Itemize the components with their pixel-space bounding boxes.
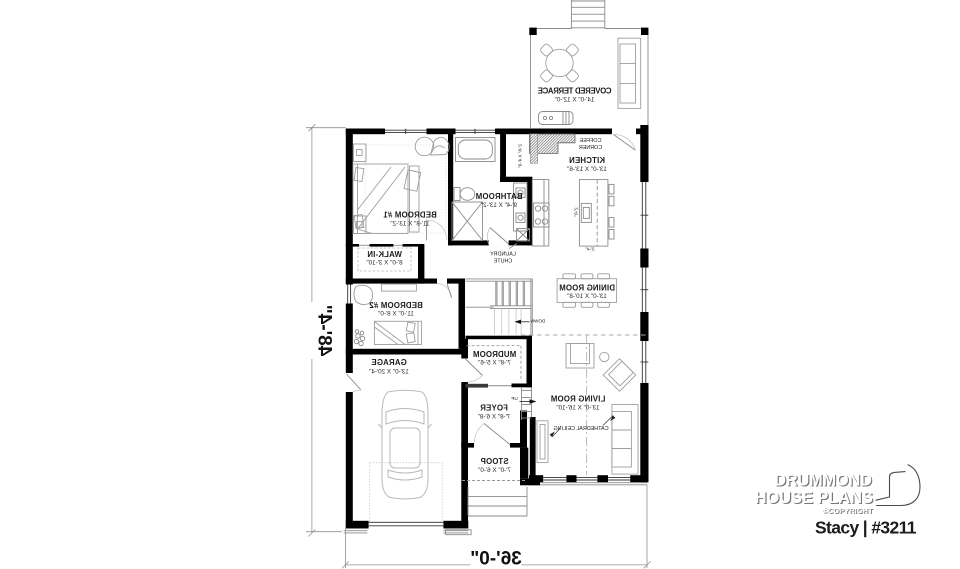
svg-text:13'-0" X 20'-4": 13'-0" X 20'-4": [369, 369, 409, 376]
svg-text:LAUNDRY: LAUNDRY: [490, 252, 516, 258]
svg-text:11'-0" X 8'-0": 11'-0" X 8'-0": [378, 311, 414, 318]
svg-text:7'-0" X 6'-0": 7'-0" X 6'-0": [478, 467, 511, 474]
svg-text:CATHEDRAL CEILING: CATHEDRAL CEILING: [553, 426, 608, 432]
svg-text:UP: UP: [511, 396, 517, 401]
svg-text:KITCHEN: KITCHEN: [569, 156, 605, 165]
svg-text:8'-0" X 3'-10": 8'-0" X 3'-10": [366, 260, 402, 267]
svg-text:13'-0" X 10'-8": 13'-0" X 10'-8": [567, 293, 607, 300]
svg-text:7'-8" X 5'-6": 7'-8" X 5'-6": [478, 360, 511, 367]
svg-text:BEDROOM #2: BEDROOM #2: [369, 301, 423, 310]
svg-text:DINING ROOM: DINING ROOM: [559, 284, 615, 293]
svg-text:13'-0" X 16'-10": 13'-0" X 16'-10": [556, 405, 599, 412]
svg-text:CORNER: CORNER: [579, 145, 602, 151]
svg-text:LIVING ROOM: LIVING ROOM: [551, 395, 606, 404]
svg-text:HOUSE PLANS: HOUSE PLANS: [755, 489, 874, 507]
svg-text:MUDROOM: MUDROOM: [473, 350, 516, 359]
svg-text:2'-0": 2'-0": [574, 207, 579, 217]
svg-text:48'-4": 48'-4": [314, 305, 335, 357]
svg-text:13'-0" X 13'-6": 13'-0" X 13'-6": [567, 166, 607, 173]
svg-text:WALK-IN: WALK-IN: [367, 250, 402, 259]
svg-text:BEDROOM #1: BEDROOM #1: [383, 211, 437, 220]
svg-text:3'-4": 3'-4": [585, 247, 595, 252]
svg-text:COFFEE: COFFEE: [579, 138, 601, 144]
svg-text:STOOP: STOOP: [480, 457, 508, 466]
svg-text:2'-6" X 4'-9": 2'-6" X 4'-9": [518, 144, 523, 168]
svg-text:36'-0": 36'-0": [470, 549, 522, 569]
svg-text:14'-0" X 12'-0": 14'-0" X 12'-0": [555, 97, 595, 104]
svg-text:BATHROOM: BATHROOM: [476, 192, 523, 201]
svg-text:DOWN: DOWN: [531, 318, 546, 323]
svg-text:COVERED TERRACE: COVERED TERRACE: [538, 87, 612, 96]
svg-text:CHUTE: CHUTE: [493, 259, 512, 265]
svg-text:FOYER: FOYER: [480, 404, 508, 413]
svg-text:DRUMMOND: DRUMMOND: [774, 472, 873, 490]
svg-text:9'-4" X 13'-2": 9'-4" X 13'-2": [481, 202, 517, 209]
svg-text:©COPYRIGHT: ©COPYRIGHT: [823, 506, 874, 515]
svg-text:11'-8" X 13'-2": 11'-8" X 13'-2": [390, 221, 429, 228]
svg-text:GARAGE: GARAGE: [371, 358, 406, 367]
svg-text:Stacy | #3211: Stacy | #3211: [815, 518, 917, 538]
svg-text:7'-8" X 6'-8": 7'-8" X 6'-8": [478, 414, 511, 421]
